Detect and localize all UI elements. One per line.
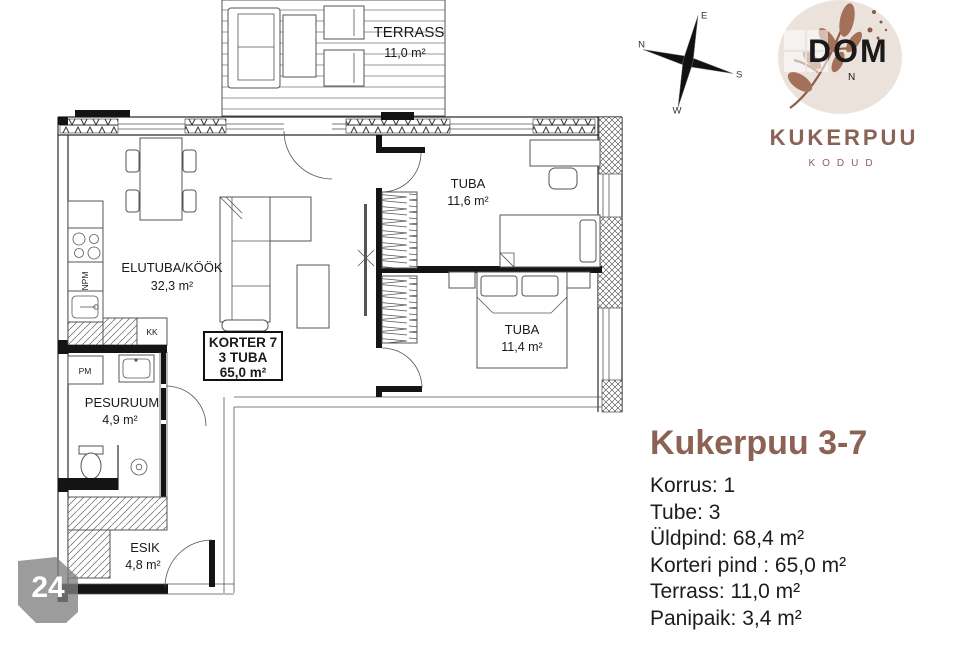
fridge-label: KK [146,327,158,337]
compass-east: E [701,11,707,22]
bathroom-label: PESURUUM [85,395,159,410]
hallway: ESIK 4,8 m² [68,497,215,587]
detail-terrace-area: Terrass: 11,0 m² [650,579,950,606]
coffee-table [297,265,329,328]
washing-machine-label: PM [79,366,92,376]
compass-rose: E N S W [635,8,747,116]
dishwasher-label: NPM [80,272,90,291]
hall-area: 4,8 m² [125,558,160,572]
listing-title: Kukerpuu 3-7 [650,424,950,463]
detail-rooms: Tube: 3 [650,500,950,527]
single-bed [500,215,600,267]
detail-apartment-area: Korteri pind : 65,0 m² [650,553,950,580]
hall-label: ESIK [130,540,160,555]
dining-table [126,138,196,220]
living-room-label: ELUTUBA/KÖÖK [121,260,222,275]
compass-south: S [736,70,742,81]
detail-floor: Korrus: 1 [650,473,950,500]
compass-west: W [673,106,682,117]
bedroom1-area: 11,6 m² [447,194,488,208]
terrace-chair [324,50,364,86]
bedroom2-area: 11,4 m² [501,340,542,354]
svg-text:3 TUBA: 3 TUBA [219,350,268,365]
balcony-door-swing [284,131,332,179]
listing-details: Korrus: 1 Tube: 3 Üldpind: 68,4 m² Korte… [650,473,950,632]
closet [68,530,110,578]
bedroom2-door-swing [382,348,422,388]
entrance-door [209,540,215,587]
floor-plan: TERRASS 11,0 m² [0,0,640,640]
wardrobe [382,276,417,343]
unit-info-box: KORTER 7 3 TUBA 65,0 m² [204,332,282,380]
svg-text:65,0 m²: 65,0 m² [220,365,267,380]
detail-total-area: Üldpind: 68,4 m² [650,526,950,553]
stove [68,228,103,262]
bathroom-door-swing [166,386,206,426]
window [118,124,533,129]
bathroom-area: 4,9 m² [102,413,137,427]
svg-text:N: N [848,72,861,83]
desk [530,140,600,166]
bathroom: PM PESURUUM 4,9 m² [58,345,206,505]
terrace-threshold [381,112,414,120]
coat-closet [68,497,167,530]
detail-storage-area: Panipaik: 3,4 m² [650,606,950,633]
bathroom-door [161,388,166,420]
listing-info: Kukerpuu 3-7 Korrus: 1 Tube: 3 Üldpind: … [650,424,950,632]
terrace-sofa [228,8,280,88]
shower-drain [131,459,147,475]
tv [358,204,374,316]
bedroom-1: TUBA 11,6 m² [382,140,600,268]
bedroom2-label: TUBA [505,322,540,337]
entrance-door-swing [165,540,212,587]
svg-text:KORTER 7: KORTER 7 [209,335,277,350]
brand-name: KUKERPUU [748,125,940,151]
toilet [79,446,103,479]
compass-north: N [638,40,645,51]
living-room-area: 32,3 m² [151,279,193,293]
terrace-label: TERRASS [374,24,445,41]
terrace-chair [324,6,364,39]
bedroom1-label: TUBA [451,176,486,191]
terrace-table [283,15,316,77]
terrace-area: 11,0 m² [384,46,425,60]
living-room: NPM KK [68,138,374,380]
desk-chair [549,168,577,189]
bedroom-2: TUBA 11,4 m² [382,272,590,368]
brand-logo: DOM N KUKERPUU KODUD [748,0,940,169]
terrace: TERRASS 11,0 m² [222,0,445,116]
svg-text:DOM: DOM [808,33,889,69]
floorplan-listing-page: { "branding": { "logo_title": "KUKERPUU"… [0,0,960,640]
washbasin [119,355,154,382]
brand-tagline: KODUD [748,158,940,169]
wardrobe [382,192,417,268]
bedroom1-door-swing [382,153,421,192]
